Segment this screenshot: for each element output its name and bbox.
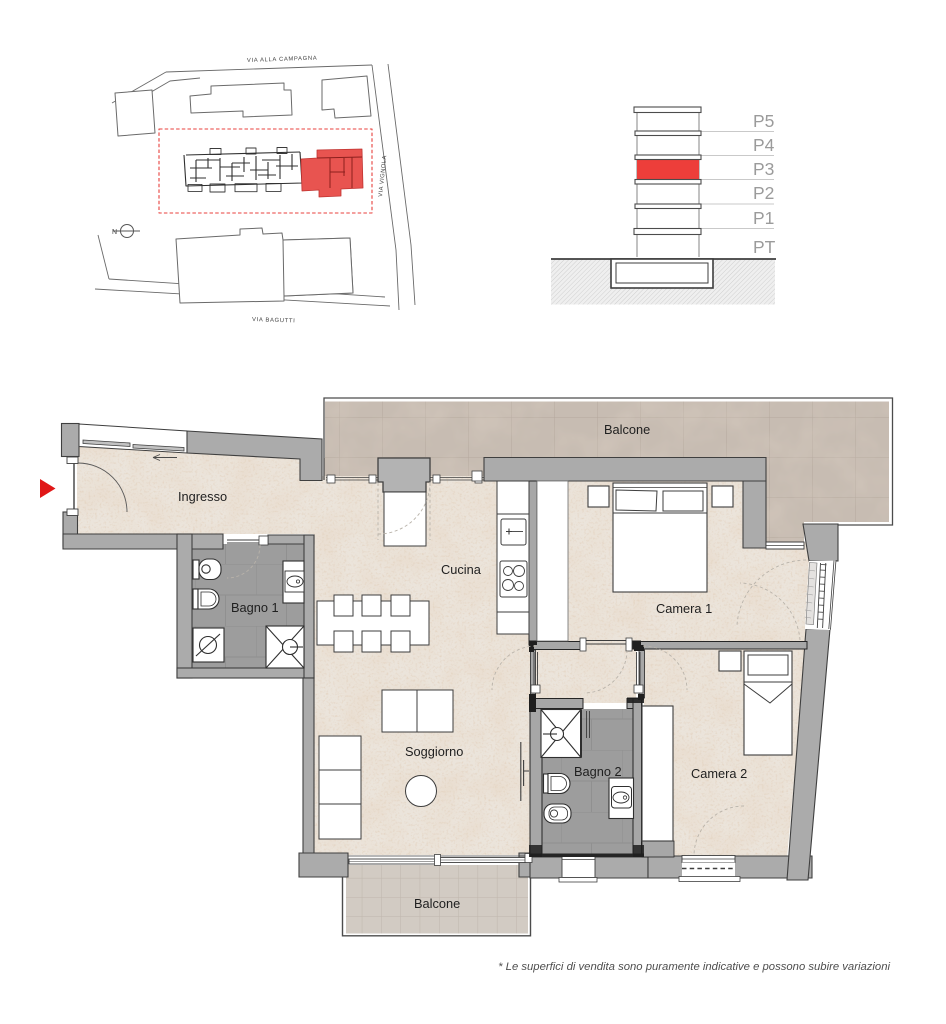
svg-text:Soggiorno: Soggiorno — [405, 744, 463, 759]
svg-text:Balcone: Balcone — [414, 896, 460, 911]
svg-text:Ingresso: Ingresso — [178, 489, 227, 504]
svg-text:Bagno 2: Bagno 2 — [574, 764, 622, 779]
svg-text:P2: P2 — [753, 183, 774, 203]
svg-text:N: N — [112, 229, 117, 236]
svg-text:Cucina: Cucina — [441, 562, 482, 577]
svg-text:Bagno 1: Bagno 1 — [231, 600, 279, 615]
svg-text:Camera 1: Camera 1 — [656, 601, 712, 616]
svg-text:P5: P5 — [753, 111, 774, 131]
svg-text:P4: P4 — [753, 135, 775, 155]
svg-text:PT: PT — [753, 237, 776, 257]
svg-text:P3: P3 — [753, 159, 774, 179]
svg-text:Camera 2: Camera 2 — [691, 766, 747, 781]
svg-text:P1: P1 — [753, 208, 774, 228]
svg-text:Balcone: Balcone — [604, 422, 650, 437]
svg-text:* Le superfici di vendita sono: * Le superfici di vendita sono puramente… — [498, 961, 890, 973]
